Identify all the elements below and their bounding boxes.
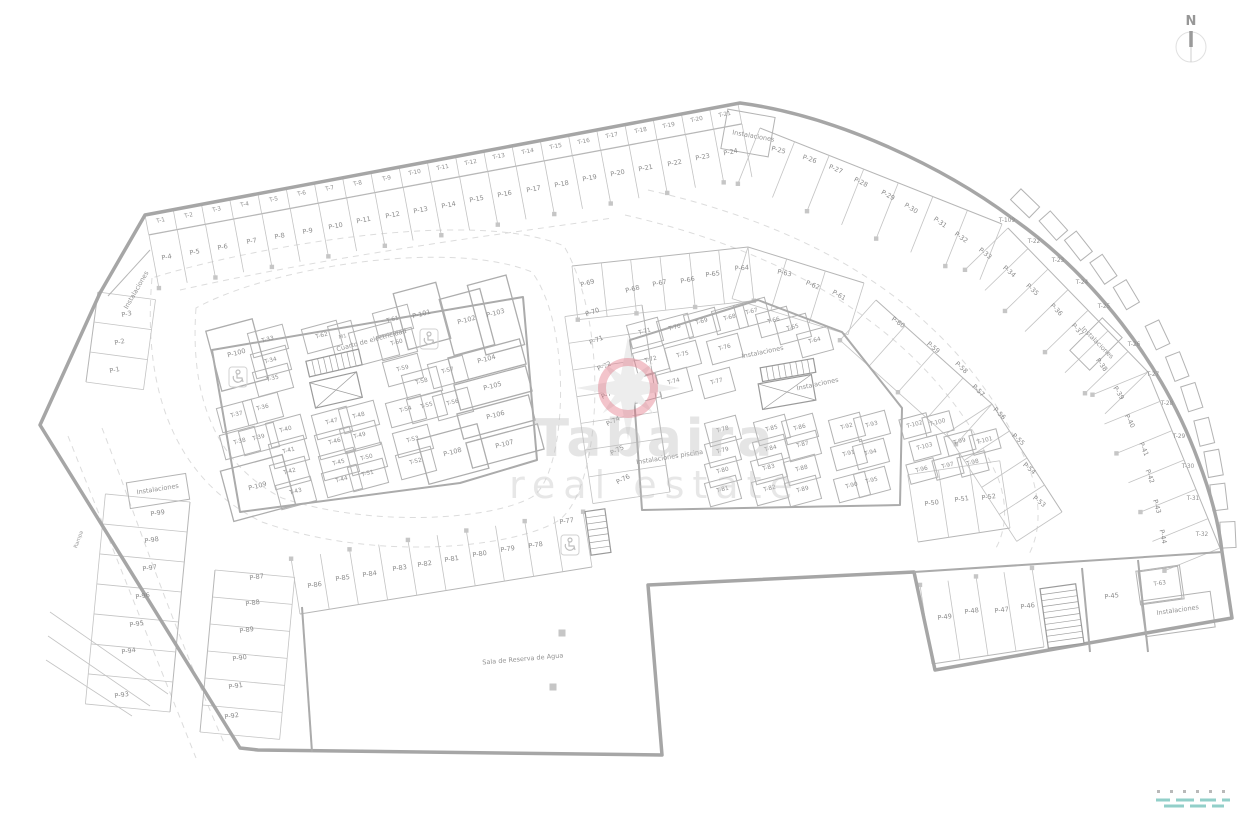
parking-space-label: P-26 (802, 153, 818, 165)
parking-space-label: P-85 (335, 573, 350, 583)
water-edge-icon (1156, 790, 1230, 806)
storage-room-label: T-44 (334, 475, 349, 484)
storage-room-label: T-32 (1195, 532, 1209, 538)
parking-space-label: P-78 (528, 540, 543, 550)
parking-space-label: P-103 (485, 307, 505, 320)
watermark-name: Tabaira (534, 409, 777, 469)
storage-room-label: T-26 (1127, 342, 1141, 348)
parking-space-label: P-2 (114, 337, 126, 347)
parking-space-label: P-90 (232, 653, 247, 663)
parking-space-label: P-17 (526, 184, 542, 195)
storage-room-label: T-109 (998, 218, 1015, 224)
parking-space-label: P-91 (228, 681, 243, 691)
parking-space-label: P-109 (247, 480, 267, 493)
parking-space-label: P-106 (485, 409, 505, 422)
parking-space-label: P-29 (880, 188, 896, 202)
parking-space-label: P-45 (1104, 591, 1119, 601)
parking-space-label: P-10 (328, 221, 344, 232)
parking-space-label: P-9 (302, 226, 314, 236)
floor-plan-page: P-1P-2P-3P-4P-5P-6P-7P-8P-9P-10P-11P-12P… (0, 0, 1253, 826)
storage-room-label: T-13 (491, 153, 506, 162)
storage-room-label: T-101 (975, 436, 993, 446)
storage-room-label: T-33 (260, 335, 275, 344)
parking-space-label: P-39 (1111, 385, 1125, 401)
storage-room-label: T-11 (435, 164, 450, 173)
parking-space-label: P-35 (1024, 282, 1040, 298)
room-label: Instalaciones (1156, 603, 1200, 617)
storage-room-label: T-7 (324, 185, 335, 193)
room-label: M1 (338, 333, 347, 341)
storage-room-label: T-21 (717, 111, 732, 120)
parking-space-label: P-18 (554, 179, 570, 190)
parking-space-label: P-65 (705, 269, 720, 279)
storage-room-label: T-77 (709, 377, 724, 386)
storage-room-label: T-15 (548, 143, 563, 152)
parking-space-label: P-46 (1020, 601, 1035, 611)
parking-space-label: P-102 (456, 314, 476, 327)
parking-space-label: P-64 (734, 264, 749, 273)
parking-space-label: P-89 (239, 625, 254, 635)
storage-room-label: T-29 (1172, 434, 1186, 440)
storage-room-label: T-38 (232, 437, 247, 446)
parking-space-label: P-44 (1158, 529, 1169, 545)
parking-space-label: P-33 (977, 246, 993, 261)
parking-space-label: P-3 (121, 309, 133, 319)
storage-room-label: T-65 (785, 323, 800, 332)
watermark-tagline: real estate (509, 463, 801, 507)
storage-room-label: T-102 (905, 420, 923, 430)
parking-space-label: P-93 (114, 690, 129, 700)
parking-space-label: P-62 (805, 279, 821, 292)
storage-room-label: T-48 (351, 411, 366, 420)
storage-room-label: T-96 (914, 465, 929, 474)
parking-space-label: P-99 (150, 508, 165, 518)
parking-space-label: P-86 (307, 580, 322, 590)
storage-room-label: T-55 (419, 401, 434, 410)
parking-space-label: P-24 (723, 147, 739, 158)
parking-space-label: P-104 (476, 353, 496, 366)
storage-room-label: T-22 (1027, 239, 1041, 245)
parking-space-label: P-54 (1021, 461, 1037, 476)
parking-space-label: P-12 (385, 210, 401, 221)
parking-space-label: P-87 (249, 572, 264, 582)
storage-room-label: T-4 (239, 201, 250, 209)
storage-room-label: T-28 (1160, 401, 1174, 407)
storage-room-label: T-5 (268, 196, 279, 204)
parking-space-label: P-34 (1001, 264, 1017, 279)
storage-room-label: T-6 (296, 190, 307, 198)
storage-room-label: T-75 (675, 350, 690, 359)
storage-room-label: T-54 (398, 405, 413, 414)
parking-space-label: P-20 (610, 168, 626, 179)
parking-space-label: P-21 (638, 163, 654, 174)
parking-space-label: P-14 (441, 200, 457, 211)
storage-room-label: T-98 (965, 458, 980, 467)
parking-space-label: P-105 (482, 380, 502, 393)
parking-space-label: P-58 (953, 360, 969, 376)
parking-space-label: P-31 (932, 215, 948, 230)
parking-space-label: P-100 (226, 347, 246, 360)
parking-space-label: P-48 (964, 606, 979, 616)
storage-room-label: T-24 (1075, 280, 1089, 286)
wheelchair-icon (561, 535, 579, 555)
parking-space-label: P-22 (667, 158, 683, 169)
storage-room-label: T-43 (288, 487, 303, 496)
storage-room-label: T-18 (633, 127, 648, 136)
parking-space-label: P-69 (579, 277, 595, 289)
parking-space-label: P-1 (109, 365, 121, 375)
parking-space-label: P-15 (469, 194, 485, 205)
storage-room-label: T-64 (807, 336, 822, 345)
parking-space-label: P-70 (584, 306, 600, 318)
parking-space-label: P-27 (828, 163, 844, 176)
storage-room-label: T-40 (278, 425, 293, 434)
room-label: Instalaciones (136, 482, 180, 497)
parking-space-label: P-98 (144, 535, 159, 545)
parking-space-label: P-43 (1151, 498, 1163, 514)
storage-room-label: T-42 (282, 467, 297, 476)
parking-space-label: P-56 (991, 406, 1007, 422)
parking-space-label: P-84 (362, 569, 377, 579)
storage-room-label: T-27 (1146, 372, 1160, 378)
parking-space-label: P-41 (1137, 441, 1150, 457)
storage-room-label: T-30 (1181, 464, 1195, 470)
storage-room-label: T-37 (229, 410, 244, 419)
parking-space-label: P-67 (652, 278, 668, 289)
parking-space-label: P-13 (413, 205, 429, 216)
storage-room-label: T-59 (395, 364, 410, 373)
storage-room-label: T-10 (407, 169, 422, 178)
storage-room-label: T-91 (841, 449, 856, 458)
parking-space-label: P-80 (472, 549, 487, 559)
storage-room-label: T-68 (722, 313, 737, 322)
storage-room-label: T-58 (414, 377, 429, 386)
storage-room-label: T-52 (408, 457, 423, 466)
parking-space-label: P-95 (129, 619, 144, 629)
storage-room-label: T-25 (1097, 304, 1111, 310)
parking-space-label: P-82 (417, 559, 432, 569)
storage-room-label: T-8 (352, 180, 363, 188)
storage-room-label: T-9 (381, 175, 392, 183)
north-label: N (1186, 14, 1197, 29)
parking-space-label: P-42 (1144, 468, 1156, 484)
storage-room-label: T-86 (792, 423, 807, 432)
room-label: Rampa (73, 530, 85, 549)
storage-room-label: T-34 (263, 356, 278, 365)
parking-space-label: P-6 (217, 242, 229, 252)
storage-room-label: T-67 (744, 307, 759, 316)
parking-space-label: P-83 (392, 563, 407, 573)
storage-room-label: T-92 (839, 422, 854, 431)
storage-room-label: T-103 (915, 442, 933, 452)
parking-space-label: P-23 (695, 152, 711, 163)
storage-room-label: T-12 (463, 159, 478, 168)
parking-space-label: P-88 (245, 598, 260, 608)
storage-room-label: T-99 (952, 437, 967, 446)
parking-space-label: P-92 (224, 711, 239, 721)
parking-space-label: P-19 (582, 173, 598, 184)
parking-space-label: P-81 (444, 554, 459, 564)
parking-space-label: P-66 (680, 275, 696, 286)
storage-room-label: T-94 (863, 448, 878, 457)
parking-space-label: P-97 (142, 563, 157, 573)
storage-room-label: T-2 (183, 212, 194, 220)
room-label: Sala de Reserva de Agua (482, 651, 564, 666)
parking-space-label: P-49 (937, 612, 952, 622)
storage-room-label: T-93 (864, 420, 879, 429)
parking-space-label: P-63 (777, 268, 793, 279)
storage-room-label: T-97 (940, 461, 955, 470)
parking-space-label: P-5 (189, 247, 201, 257)
parking-space-label: P-16 (497, 189, 513, 200)
storage-room-label: T-14 (520, 148, 535, 157)
storage-room-label: T-3 (211, 206, 222, 214)
parking-space-label: P-108 (442, 446, 462, 459)
storage-room-label: T-100 (928, 418, 946, 428)
storage-room-label: T-49 (352, 431, 367, 440)
storage-room-label: T-1 (155, 217, 166, 225)
storage-room-label: T-74 (666, 377, 681, 386)
parking-space-label: P-36 (1049, 302, 1065, 318)
parking-space-label: P-71 (588, 334, 604, 347)
parking-space-label: P-53 (1031, 494, 1047, 509)
parking-space-label: P-107 (494, 438, 514, 451)
storage-room-label: T-23 (1051, 258, 1065, 264)
storage-room-label: T-19 (661, 122, 676, 131)
parking-space-label: P-50 (924, 498, 939, 508)
storage-room-label: T-70 (667, 323, 682, 332)
storage-room-label: T-36 (255, 403, 270, 412)
storage-room-label: T-51 (360, 469, 375, 478)
floor-plan-drawing: P-1P-2P-3P-4P-5P-6P-7P-8P-9P-10P-11P-12P… (0, 0, 1253, 826)
storage-room-label: T-60 (389, 338, 404, 347)
parking-space-label: P-11 (356, 215, 372, 226)
parking-space-label: P-79 (500, 544, 515, 554)
parking-space-label: P-28 (853, 175, 869, 189)
parking-space-label: P-7 (246, 236, 258, 246)
room-label: Instalaciones (1080, 325, 1116, 361)
storage-room-label: T-41 (281, 446, 296, 455)
parking-space-label: P-77 (559, 516, 574, 526)
north-arrow: N (1176, 14, 1206, 62)
storage-room-label: T-66 (766, 316, 781, 325)
parking-space-label: P-51 (954, 494, 969, 504)
parking-space-label: P-8 (274, 231, 286, 241)
parking-space-label: P-25 (771, 144, 787, 155)
parking-space-label: P-47 (994, 605, 1009, 615)
storage-room-label: T-90 (844, 481, 859, 490)
storage-room-label: T-16 (576, 138, 591, 147)
storage-room-label: T-76 (717, 343, 732, 352)
storage-room-label: T-45 (331, 458, 346, 467)
storage-room-label: T-31 (1186, 496, 1200, 502)
parking-space-label: P-30 (903, 201, 919, 215)
parking-space-label: P-68 (624, 283, 640, 294)
wheelchair-icon (229, 367, 247, 387)
room-label: Instalaciones (732, 128, 776, 143)
storage-room-label: T-46 (327, 437, 342, 446)
storage-room-label: T-47 (324, 417, 339, 426)
parking-space-label: P-101 (411, 308, 431, 321)
parking-space-label: P-94 (121, 646, 136, 656)
parking-space-label: P-40 (1123, 413, 1137, 429)
storage-room-label: T-17 (604, 132, 619, 141)
parking-space-label: P-52 (981, 492, 996, 502)
room-label: Instalaciones (741, 344, 785, 361)
parking-space-label: P-4 (161, 252, 173, 262)
storage-room-label: T-20 (689, 116, 704, 125)
storage-room-label: T-56 (445, 398, 460, 407)
storage-room-label: T-63 (1152, 580, 1166, 588)
storage-room-label: T-61 (385, 315, 400, 324)
parking-space-label: P-32 (953, 230, 969, 245)
parking-space-label: P-38 (1094, 357, 1109, 373)
